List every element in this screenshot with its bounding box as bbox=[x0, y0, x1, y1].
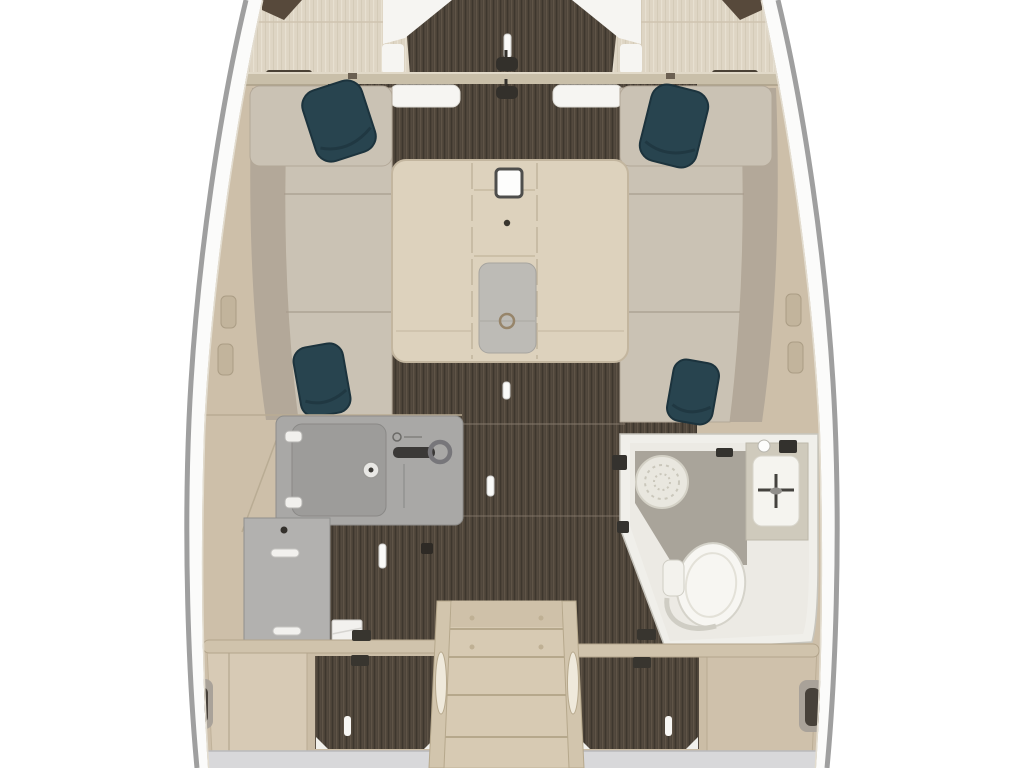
floor-light-4 bbox=[344, 716, 351, 736]
shower-drain bbox=[636, 456, 688, 508]
cabinet-handle-2 bbox=[273, 627, 301, 635]
floor-hatch-port bbox=[315, 656, 436, 749]
door-hinge-2 bbox=[617, 521, 629, 533]
recess-port-2 bbox=[218, 344, 233, 375]
grab-rail-starboard bbox=[574, 644, 819, 657]
beam-notch-starboard bbox=[666, 73, 675, 79]
floor-light-2 bbox=[487, 476, 494, 496]
stove-knob-dot bbox=[369, 468, 374, 473]
recess-starboard-2 bbox=[788, 342, 803, 373]
vanity-fitting bbox=[779, 440, 797, 453]
companionway-steps bbox=[429, 601, 584, 768]
floor-light-1 bbox=[503, 382, 510, 399]
cabinet-knob bbox=[281, 527, 288, 534]
stove-hinge-1 bbox=[285, 431, 302, 442]
doorpost-starboard bbox=[620, 44, 642, 74]
step-dot bbox=[470, 645, 475, 650]
basin-faucet-base bbox=[770, 488, 782, 495]
step-dot bbox=[539, 616, 544, 621]
door-latch-handle-2 bbox=[496, 86, 518, 99]
toilet-hinge bbox=[663, 560, 684, 596]
floor-light-3 bbox=[379, 544, 386, 568]
step-dot bbox=[539, 645, 544, 650]
bow-section bbox=[196, 0, 828, 85]
recess-port-1 bbox=[221, 296, 236, 328]
saloon-table bbox=[392, 160, 628, 362]
rail-clamp bbox=[352, 630, 371, 641]
cabinet-handle-1 bbox=[271, 549, 299, 557]
cabin-doorframe-starboard bbox=[553, 85, 623, 107]
handrail-cutout-starboard bbox=[568, 652, 579, 714]
handrail-cutout-port bbox=[436, 652, 447, 714]
cabin-doorframe-port bbox=[390, 85, 460, 107]
top-landing bbox=[450, 601, 563, 627]
interior bbox=[180, 0, 844, 768]
vanity-knob bbox=[758, 440, 770, 452]
boat-floor-plan-svg bbox=[0, 0, 1024, 768]
door-hinge-3 bbox=[716, 448, 733, 457]
rail-clamp bbox=[637, 629, 656, 640]
recess-starboard-1 bbox=[786, 294, 801, 326]
bulkhead-beam bbox=[204, 72, 824, 85]
door-hinge-1 bbox=[612, 455, 627, 470]
floor-hatch-starboard bbox=[577, 656, 699, 749]
step-dot bbox=[470, 616, 475, 621]
table-square-fitting bbox=[496, 169, 522, 197]
door-latch-handle-1 bbox=[496, 57, 518, 71]
beam-notch-port bbox=[348, 73, 357, 79]
floor-plan bbox=[0, 0, 1024, 768]
stove-hinge-2 bbox=[285, 497, 302, 508]
table-center-pin bbox=[504, 220, 510, 226]
doorpost-port bbox=[382, 44, 404, 74]
floor-light-5 bbox=[665, 716, 672, 736]
grab-rail-port bbox=[203, 640, 440, 653]
throw-pillow-4 bbox=[665, 357, 721, 426]
rail-clamp bbox=[633, 657, 651, 668]
berth-panel-port bbox=[207, 648, 311, 755]
floor-vent bbox=[421, 543, 433, 554]
rail-clamp bbox=[351, 655, 369, 666]
table-inlay-panel bbox=[479, 263, 536, 353]
